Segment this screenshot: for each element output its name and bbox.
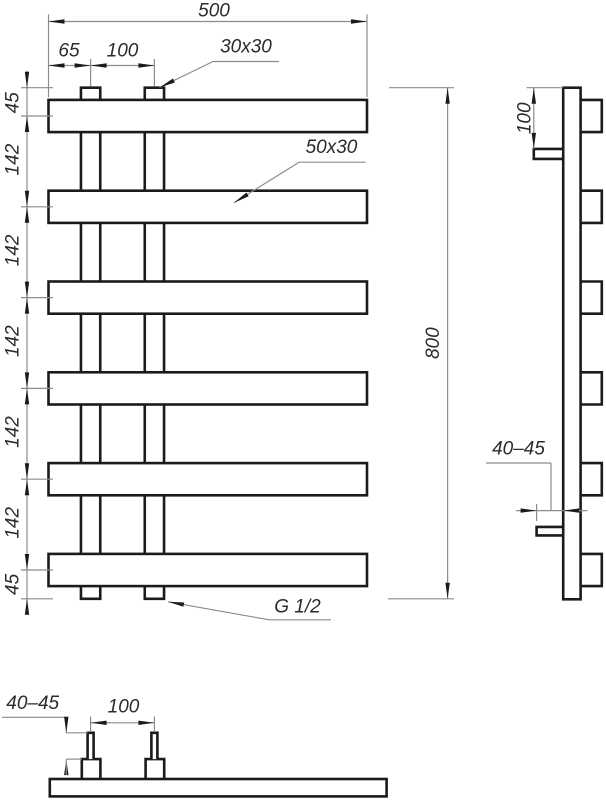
svg-text:142: 142: [3, 416, 24, 448]
svg-text:45: 45: [2, 573, 23, 595]
svg-text:142: 142: [3, 234, 24, 266]
svg-text:100: 100: [107, 41, 139, 62]
svg-text:30x30: 30x30: [220, 37, 272, 58]
svg-text:G 1/2: G 1/2: [274, 597, 321, 618]
svg-text:142: 142: [3, 325, 24, 357]
svg-text:65: 65: [58, 41, 80, 62]
svg-text:40–45: 40–45: [6, 693, 59, 714]
svg-text:500: 500: [198, 1, 230, 22]
svg-text:100: 100: [515, 102, 536, 134]
svg-text:40–45: 40–45: [492, 439, 545, 460]
svg-text:142: 142: [3, 143, 24, 175]
svg-text:800: 800: [423, 327, 444, 359]
svg-text:45: 45: [2, 92, 23, 114]
svg-text:142: 142: [3, 507, 24, 539]
svg-text:100: 100: [108, 697, 140, 718]
svg-text:50x30: 50x30: [306, 137, 358, 158]
